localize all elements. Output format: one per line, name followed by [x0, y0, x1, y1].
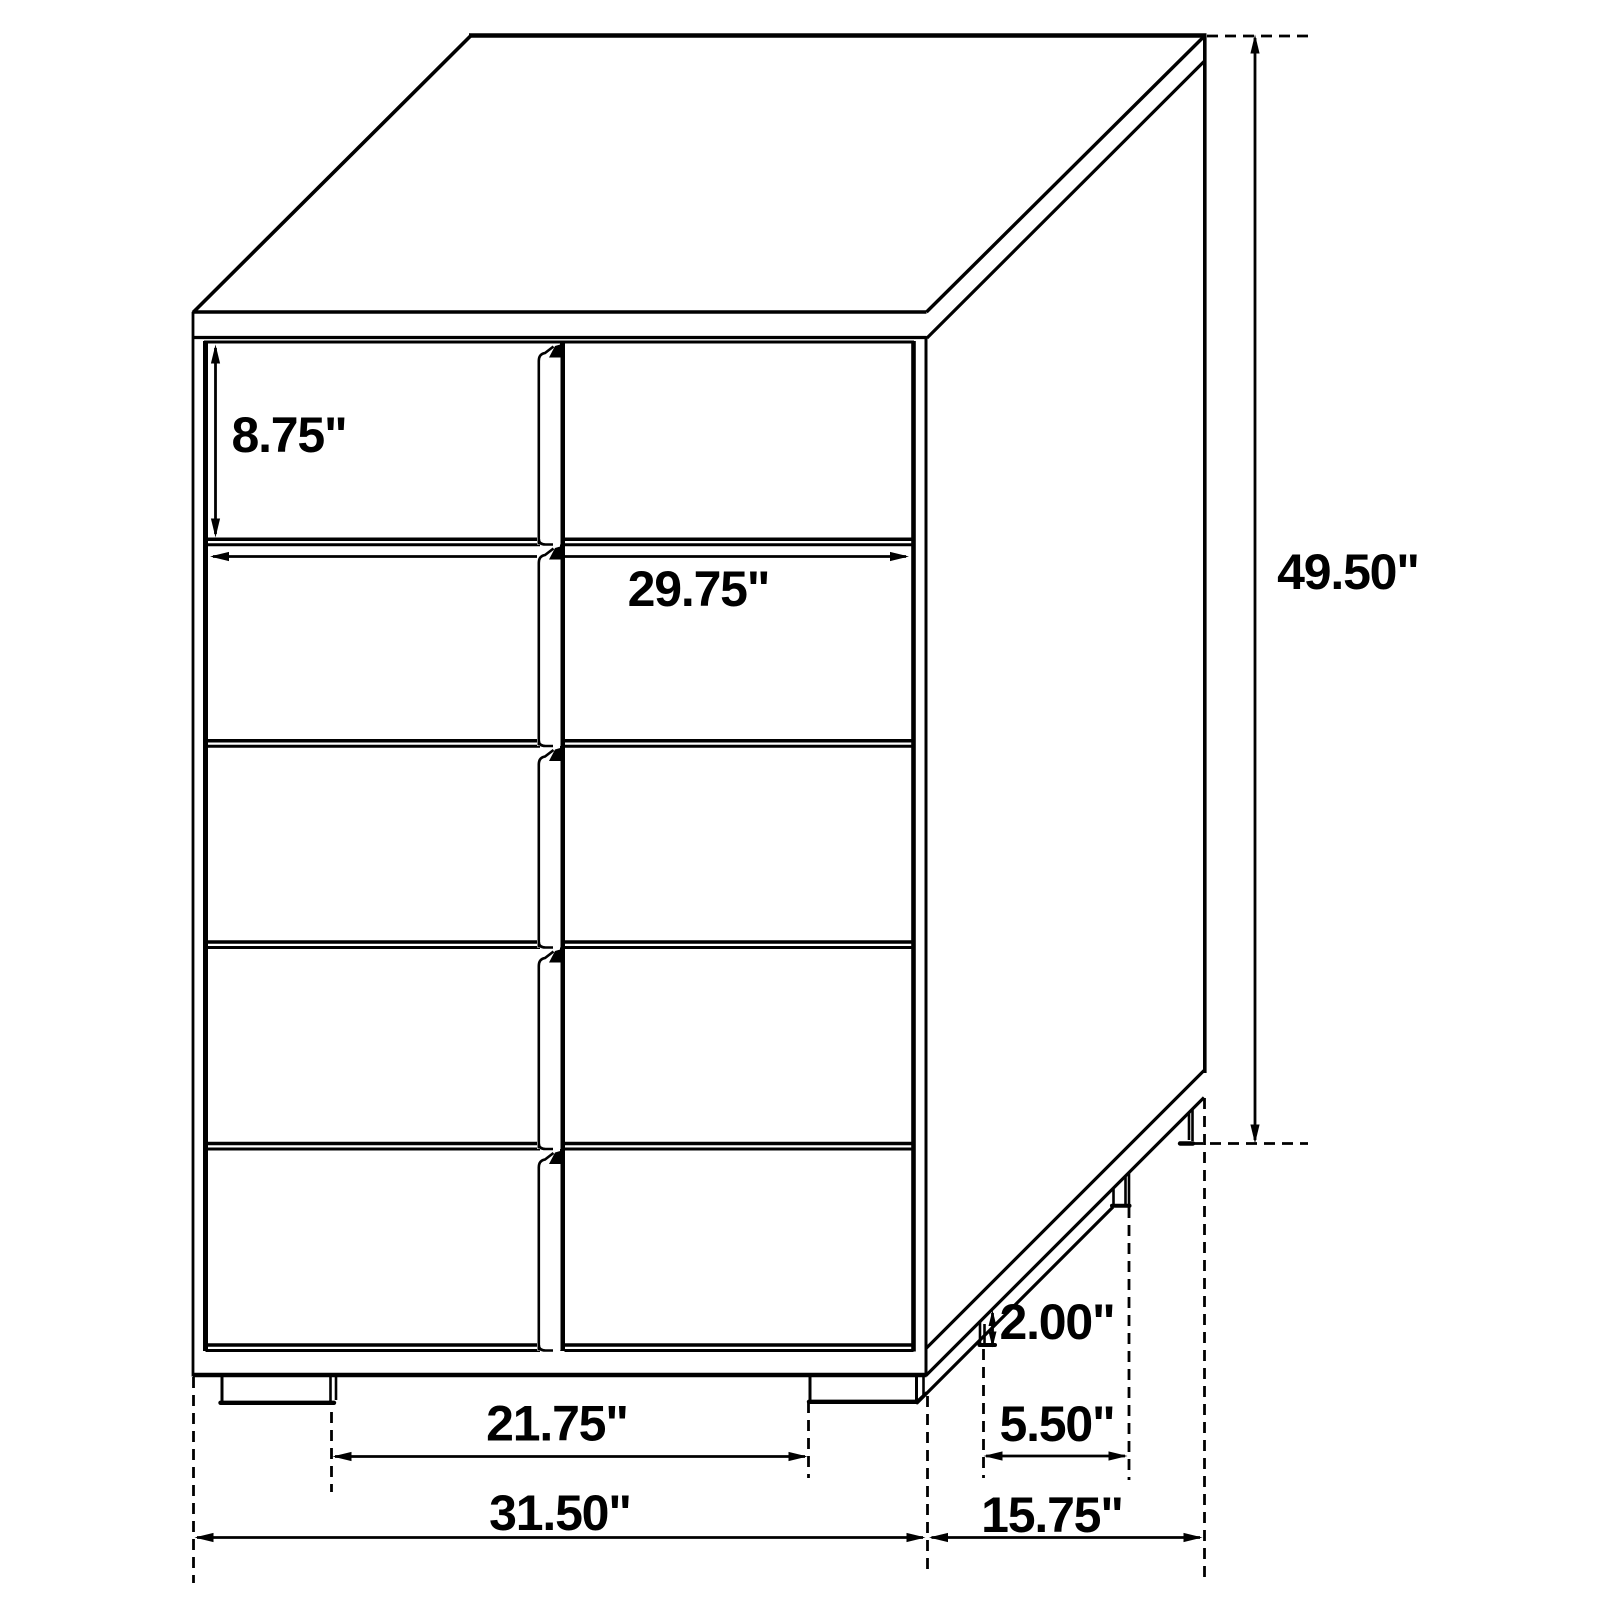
svg-text:29.75": 29.75" [628, 561, 770, 617]
svg-text:31.50": 31.50" [489, 1485, 631, 1541]
svg-text:2.00": 2.00" [999, 1294, 1114, 1350]
svg-text:49.50": 49.50" [1277, 544, 1419, 600]
svg-text:21.75": 21.75" [486, 1396, 628, 1452]
svg-text:8.75": 8.75" [231, 407, 346, 463]
svg-text:15.75": 15.75" [981, 1487, 1123, 1543]
svg-text:5.50": 5.50" [999, 1396, 1114, 1452]
